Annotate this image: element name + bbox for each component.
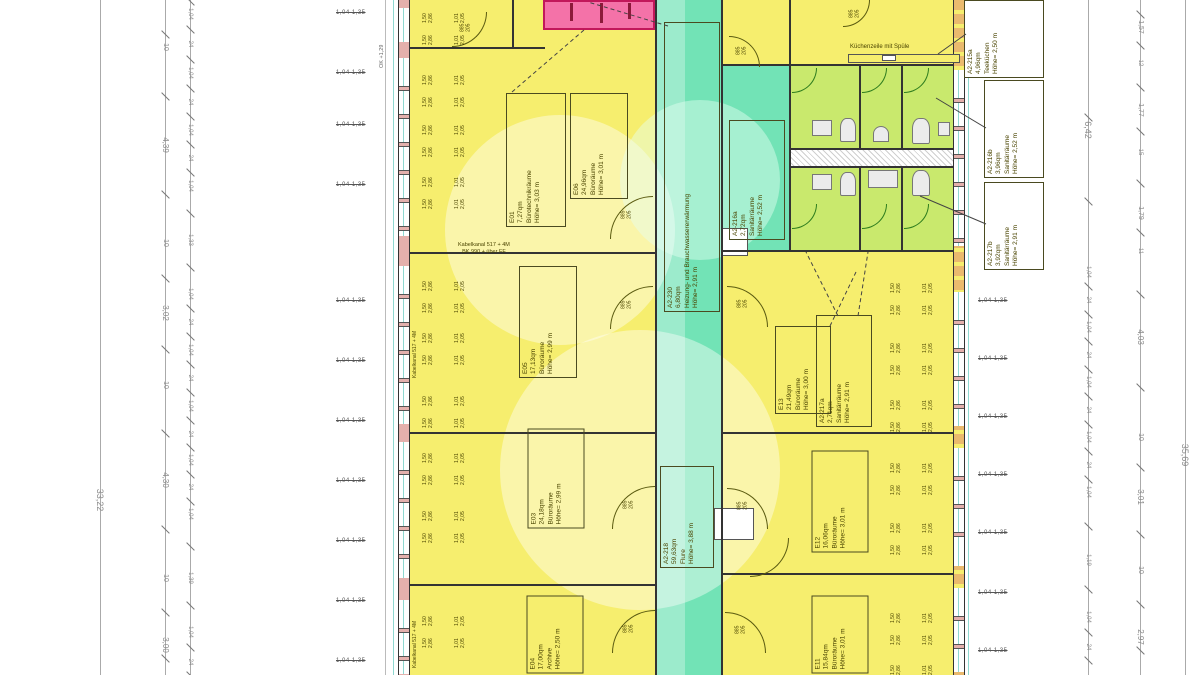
mullion [954, 320, 964, 325]
room-label-line: E13 [778, 330, 786, 410]
window-band-right [954, 588, 964, 672]
dim-value-windows-left: 1,33 [183, 218, 197, 262]
room-label-line: 15,84qm [822, 599, 830, 669]
room-label-line: Teeküchen [984, 4, 992, 74]
door-size-tag: 885205 [737, 502, 749, 510]
window-dimension-pair: 1,04 1,35 [978, 298, 1008, 304]
window-tag: 1,012,05 [455, 459, 475, 485]
room-label-line: Büroräume [795, 330, 803, 410]
room-label-line: Heizung- und Brauchwassererwärmung [684, 26, 692, 308]
dim-value-rooms-left: 3,02 [158, 291, 172, 335]
room-label-line: Höhe= 2,91 m [844, 319, 852, 423]
room-label-line: Sanitärräume [1004, 84, 1012, 174]
room-label-line: Höhe= 2,99 m [555, 432, 563, 524]
wall-wc-divider-3 [859, 167, 861, 250]
room-label-e03: E0324,18qmBüroräumeHöhe= 2,99 m [527, 428, 584, 528]
room-label-line: 2,72qm [740, 124, 748, 236]
room-label-line: 3,96qm [995, 84, 1003, 174]
room-label-s216a: A2-216a2,72qmSanitärräumeHöhe= 2,52 m [729, 120, 785, 240]
window-dimension-pair: 1,04 1,35 [336, 478, 366, 484]
window-dimension-pair: 1,04 1,35 [336, 658, 366, 664]
dim-value-rooms-left: 4,30 [158, 458, 172, 502]
room-label-line: A2-215a [967, 4, 975, 74]
dim-value-rooms-left: 10 [158, 556, 172, 600]
window-tag: 1,012,05 [455, 131, 475, 157]
mullion [399, 470, 409, 475]
dim-value-rooms-right: 15 [1133, 130, 1147, 174]
window-dimension-pair: 1,04 1,35 [336, 122, 366, 128]
door-size-value: 205 [627, 300, 633, 308]
window-tag: 1,012,05 [923, 406, 943, 432]
room-label-line: 59,63qm [671, 470, 679, 564]
facade-reference-line-right [968, 0, 969, 675]
room-label-line: A2-217b [987, 186, 995, 266]
window-tag-cluster: 1,502,861,012,051,502,861,012,05 [420, 320, 478, 362]
dim-value-rooms-left: 4,39 [158, 123, 172, 167]
window-dimension-pair: 1,04 1,35 [336, 538, 366, 544]
room-label-line: 17,00qm [537, 599, 545, 669]
door-size-tag: 885205 [736, 47, 748, 55]
room-label-line: E11 [814, 599, 822, 669]
window-band-right [954, 292, 964, 426]
room-label-line: Höhe= 3,01 m [839, 454, 847, 548]
wc-fixture [912, 118, 930, 144]
mullion [399, 554, 409, 559]
sink2-fixture [868, 170, 898, 188]
cable-channel-line2: BK 990 + über FF [458, 249, 510, 256]
dim-value-total-right: 35,69 [1178, 433, 1192, 477]
cable-channel-line1: Kabelkanal 517 + 4M [458, 242, 510, 249]
dim-value-rooms-right: 1,77 [1133, 88, 1147, 132]
dim-value-rooms-right: 12 [1133, 41, 1147, 85]
window-tag: 1,012,05 [923, 619, 943, 645]
room-label-line: 4,96qm [975, 4, 983, 74]
door-size-tag: 885205 [621, 300, 633, 308]
window-band-right [954, 448, 964, 566]
window-tag-cluster: 1,502,861,012,051,502,861,012,05 [420, 0, 478, 42]
mullion [399, 406, 409, 411]
window-tag: 1,502,86 [891, 529, 911, 555]
window-dimension-pair: 1,04 1,35 [336, 358, 366, 364]
mullion [399, 170, 409, 175]
window-dimension-pair: 1,04 1,35 [336, 10, 366, 16]
facade-reference-line-left [393, 0, 394, 675]
window-tag: 1,502,86 [423, 339, 443, 365]
mullion [954, 98, 964, 103]
room-label-s217a: A2-217a2,71qmSanitärräumeHöhe= 2,91 m [816, 315, 872, 427]
mullion [954, 182, 964, 187]
kitchen-sink [882, 55, 896, 61]
window-tag-cluster: 1,502,861,012,051,502,861,012,05 [888, 510, 946, 552]
stair-mark-1 [570, 3, 573, 21]
room-label-line: A2-217a [819, 319, 827, 423]
window-tag: 1,502,86 [423, 183, 443, 209]
window-tag-cluster: 1,502,861,012,051,502,861,012,05 [420, 383, 478, 425]
window-tag: 1,012,05 [455, 517, 475, 543]
room-label-line: Büroräume [590, 97, 598, 195]
window-tag: 1,502,86 [891, 619, 911, 645]
glazing-line [403, 600, 404, 674]
sink-fixture [938, 122, 950, 136]
room-label-line: Sanitärräume [1004, 186, 1012, 266]
window-dimension-pair: 1,04 1,35 [978, 414, 1008, 420]
room-label-e11: E1115,84qmBüroräumeHöhe= 3,01 m [811, 595, 868, 673]
window-tag: 1,502,86 [891, 671, 911, 675]
window-tag-cluster: 1,502,861,012,051,502,861,012,05 [420, 603, 478, 645]
glazing-line [958, 588, 959, 672]
room-label-line: Höhe= 2,50 m [992, 4, 1000, 74]
window-band-left [399, 58, 409, 236]
sanitary-mini-corridor [790, 148, 965, 167]
wall-h-topleft [398, 47, 545, 49]
glazing-line [403, 58, 404, 236]
wall-h-wc-bottom [790, 166, 965, 168]
mullion [399, 198, 409, 203]
window-tag: 1,012,05 [455, 339, 475, 365]
mullion [954, 616, 964, 621]
door-size-tag: 885205 [735, 626, 747, 634]
dim-line-total-right [1185, 0, 1186, 675]
room-label-line: Höhe= 3,88 m [688, 470, 696, 564]
room-label-line: 16,06qm [822, 454, 830, 548]
mullion [399, 656, 409, 661]
window-band-left [399, 600, 409, 674]
room-label-e06: E0624,96qmBüroräumeHöhe= 3,01 m [570, 93, 628, 199]
window-tag: 1,012,05 [455, 287, 475, 313]
wall-wc-divider-2 [901, 64, 903, 148]
room-label-line: Flure [680, 470, 688, 564]
wall-wc-divider-1 [859, 64, 861, 148]
mullion [954, 404, 964, 409]
dim-value-windows-left: 24 [183, 640, 197, 675]
door-size-tag: 885205 [623, 624, 635, 632]
wall-topleft-divider [512, 0, 514, 47]
mullion [399, 350, 409, 355]
room-label-line: Büroräume [831, 454, 839, 548]
window-tag: 1,502,86 [423, 517, 443, 543]
window-tag: 1,502,86 [423, 622, 443, 648]
window-tag: 1,012,05 [923, 671, 943, 675]
mullion [399, 628, 409, 633]
wall-h-e06-e05 [398, 252, 657, 254]
mullion [399, 322, 409, 327]
window-dimension-pair: 1,04 1,35 [336, 298, 366, 304]
room-label-line: Höhe= 3,01 m [598, 97, 606, 195]
room-label-line: E04 [529, 599, 537, 669]
mullion [399, 378, 409, 383]
dim-value-windows-left: 1,39 [183, 556, 197, 600]
window-tag: 1,502,86 [423, 459, 443, 485]
wc-fixture [840, 118, 856, 142]
dim-value-total-left: 33,22 [93, 478, 107, 522]
window-tag: 1,502,86 [423, 131, 443, 157]
door-size-value: 205 [855, 9, 861, 17]
window-tag-cluster: 1,502,861,012,051,502,861,012,05 [420, 498, 478, 540]
room-label-line: Höhe= 2,50 m [554, 599, 562, 669]
kitchen-counter [848, 54, 960, 63]
window-dimension-pair: 1,04 1,35 [336, 70, 366, 76]
room-label-line: Höhe= 3,01 m [839, 599, 847, 669]
mullion [399, 86, 409, 91]
door-size-value: 205 [742, 47, 748, 55]
mullion [954, 126, 964, 131]
room-label-line: E12 [814, 454, 822, 548]
glazing-line [403, 266, 404, 424]
room-label-s217b: A2-217b3,92qmSanitärräumeHöhe= 2,91 m [984, 182, 1044, 270]
room-label-line: A2-218 [663, 470, 671, 564]
dim-value-rooms-left: 10 [158, 221, 172, 265]
room-label-line: Sanitärräume [749, 124, 757, 236]
room-label-line: E05 [522, 270, 530, 374]
cable-channel-note: Kabelkanal 517 + 4M BK 990 + über FF [458, 242, 510, 255]
urinal-fixture [873, 126, 889, 142]
room-label-line: Sanitärräume [836, 319, 844, 423]
floor-plan-canvas: Küchenzeile mit Spüle Kabelkanal 517 + 4… [0, 0, 1200, 675]
room-label-line: Büroräume [539, 270, 547, 374]
room-label-line: Höhe= 3,00 m [803, 330, 811, 410]
door-size-value: 205 [629, 500, 635, 508]
window-tag: 1,012,05 [455, 183, 475, 209]
window-tag: 1,502,86 [891, 289, 911, 315]
room-label-heizung: A2-2306,80qmHeizung- und Brauchwassererw… [664, 22, 720, 312]
mullion [954, 238, 964, 243]
mullion [399, 114, 409, 119]
door-size-value: 205 [627, 210, 633, 218]
mullion [399, 142, 409, 147]
door-size-value: 205 [743, 300, 749, 308]
sink-fixture [812, 120, 832, 136]
room-label-line: 24,18qm [538, 432, 546, 524]
room-label-line: Höhe= 2,91 m [692, 26, 700, 308]
window-dimension-pair: 1,04 1,35 [978, 356, 1008, 362]
mullion [954, 376, 964, 381]
mullion [954, 644, 964, 649]
window-band-left [399, 266, 409, 424]
window-tag: 1,502,86 [891, 469, 911, 495]
room-label-line: Höhe= 3,03 m [534, 97, 542, 223]
window-tag: 1,012,05 [923, 529, 943, 555]
room-label-line: A2-216a [732, 124, 740, 236]
dim-value-windows-right: 1,04 [1081, 470, 1095, 514]
mullion [954, 504, 964, 509]
room-label-line: E01 [509, 97, 517, 223]
wall-h-e13-e12 [721, 432, 965, 434]
window-tag-cluster: 1,502,861,012,051,502,861,012,05 [420, 62, 478, 104]
wc-fixture [912, 170, 930, 196]
window-band-left [399, 8, 409, 42]
wall-corridor-left [655, 0, 657, 675]
stairwell-pink [543, 0, 655, 30]
room-label-line: 24,96qm [581, 97, 589, 195]
room-label-line: A2-230 [667, 26, 675, 308]
room-label-line: Büroräume [831, 599, 839, 669]
mullion [954, 154, 964, 159]
room-label-line: 21,49qm [786, 330, 794, 410]
wall-note-vertical-1: Kabelkanal 517 + 4M [412, 288, 418, 378]
room-label-e12: E1216,06qmBüroräumeHöhe= 3,01 m [811, 450, 868, 552]
room-label-line: 2,71qm [827, 319, 835, 423]
door-size-tag: 885205 [737, 300, 749, 308]
wc-fixture [840, 172, 856, 196]
window-band-left [399, 442, 409, 578]
mullion [954, 532, 964, 537]
door-size-tag: 885205 [623, 500, 635, 508]
window-tag: 1,502,86 [891, 406, 911, 432]
dim-line-total-left [100, 0, 101, 675]
window-tag-cluster: 1,502,861,012,051,502,861,012,05 [420, 112, 478, 154]
dim-value-rooms-right: 10 [1133, 415, 1147, 459]
room-label-line: Archive [546, 599, 554, 669]
mullion [399, 526, 409, 531]
dim-value-rooms-left: 10 [158, 25, 172, 69]
window-tag-cluster: 1,502,861,012,051,502,861,012,05 [888, 330, 946, 372]
window-tag: 1,012,05 [455, 81, 475, 107]
dim-value-rooms-right: 4,03 [1133, 315, 1147, 359]
room-label-line: E03 [530, 432, 538, 524]
dim-value-rooms-right: 10 [1133, 548, 1147, 592]
window-tag-cluster: 1,502,861,012,051,502,861,012,05 [888, 387, 946, 429]
window-tag: 1,502,86 [423, 287, 443, 313]
window-dimension-pair: 1,04 1,35 [978, 472, 1008, 478]
door-size-tag: 885205 [461, 24, 473, 32]
kitchen-label: Küchenzeile mit Spüle [850, 44, 909, 50]
stair-mark-3 [628, 3, 631, 19]
room-label-flur: A2-21859,63qmFlureHöhe= 3,88 m [660, 466, 714, 568]
window-tag: 1,012,05 [923, 349, 943, 375]
door-size-tag: 885205 [849, 9, 861, 17]
mullion [954, 476, 964, 481]
dim-value-rooms-right: 2,97 [1133, 615, 1147, 659]
window-dimension-pair: 1,04 1,35 [978, 530, 1008, 536]
wall-h-e03-e04 [398, 584, 657, 586]
room-label-line: Höhe= 2,99 m [547, 270, 555, 374]
window-tag: 1,012,05 [923, 289, 943, 315]
dim-value-windows-right: 6,42 [1081, 108, 1095, 152]
room-label-e04: E0417,00qmArchiveHöhe= 2,50 m [526, 595, 583, 673]
room-label-tee: A2-215a4,96qmTeeküchenHöhe= 2,50 m [964, 0, 1044, 78]
room-label-line: 3,92qm [995, 186, 1003, 266]
glazing-line [403, 8, 404, 42]
window-tag-cluster: 1,502,861,012,051,502,861,012,05 [888, 652, 946, 675]
room-label-line: A2-216b [987, 84, 995, 174]
level-mark: OK +1,29 [379, 28, 385, 68]
room-label-e01: E017,27qmBürotechnikräumeHöhe= 3,03 m [506, 93, 566, 227]
window-dimension-pair: 1,04 1,35 [336, 598, 366, 604]
mullion [399, 226, 409, 231]
window-tag: 1,012,05 [455, 402, 475, 428]
door-size-value: 205 [629, 624, 635, 632]
room-label-line: Höhe= 2,52 m [1012, 84, 1020, 174]
dim-value-windows-right: 1,19 [1081, 538, 1095, 582]
wall-wc-divider-4 [901, 167, 903, 250]
dim-value-windows-left: 1,04 [183, 492, 197, 536]
window-tag-cluster: 1,502,861,012,051,502,861,012,05 [420, 164, 478, 206]
mullion [954, 348, 964, 353]
door-size-value: 205 [743, 502, 749, 510]
room-label-line: Büroräume [547, 432, 555, 524]
window-tag-cluster: 1,502,861,012,051,502,861,012,05 [420, 440, 478, 482]
stair-mark-2 [600, 3, 603, 23]
wall-kitchen-divider [789, 0, 791, 250]
room-label-line: 17,13qm [530, 270, 538, 374]
wall-h-wc-top [790, 148, 965, 150]
mullion [399, 498, 409, 503]
window-dimension-pair: 1,04 1,35 [336, 418, 366, 424]
room-label-line: Höhe= 2,91 m [1012, 186, 1020, 266]
room-label-line: Höhe= 2,52 m [757, 124, 765, 236]
room-label-s216b: A2-216b3,96qmSanitärräumeHöhe= 2,52 m [984, 80, 1044, 178]
window-tag-cluster: 1,502,861,012,051,502,861,012,05 [420, 268, 478, 310]
door-size-value: 205 [466, 24, 472, 32]
mullion [954, 210, 964, 215]
window-tag: 1,012,05 [455, 622, 475, 648]
room-label-line: E06 [573, 97, 581, 195]
wall-note-vertical-2: Kabelkanal 517 + 4M [412, 578, 418, 668]
room-label-line: Bürotechnikräume [526, 97, 534, 223]
window-dimension-pair: 1,04 1,35 [978, 648, 1008, 654]
mullion [399, 294, 409, 299]
sink-fixture [812, 174, 832, 190]
window-tag: 1,502,86 [891, 349, 911, 375]
window-dimension-pair: 1,04 1,35 [978, 590, 1008, 596]
window-band-right [954, 70, 964, 246]
window-tag-cluster: 1,502,861,012,051,502,861,012,05 [888, 600, 946, 642]
window-tag: 1,502,86 [423, 19, 443, 45]
window-tag-cluster: 1,502,861,012,051,502,861,012,05 [888, 270, 946, 312]
facade-grid-line-left [385, 0, 386, 675]
window-tag: 1,502,86 [423, 402, 443, 428]
room-label-line: 7,27qm [517, 97, 525, 223]
window-tag: 1,502,86 [423, 81, 443, 107]
window-tag-cluster: 1,502,861,012,051,502,861,012,05 [888, 450, 946, 492]
room-label-e05: E0517,13qmBüroräumeHöhe= 2,99 m [519, 266, 577, 378]
door-size-value: 205 [741, 626, 747, 634]
window-dimension-pair: 1,04 1,35 [336, 182, 366, 188]
room-label-line: 6,80qm [675, 26, 683, 308]
dim-value-rooms-right: 3,01 [1133, 475, 1147, 519]
dim-value-rooms-left: 10 [158, 363, 172, 407]
window-tag: 1,012,05 [923, 469, 943, 495]
dim-value-rooms-left: 3,00 [158, 623, 172, 667]
wall-h-sanitary-e13 [721, 250, 965, 252]
door-size-tag: 885205 [621, 210, 633, 218]
